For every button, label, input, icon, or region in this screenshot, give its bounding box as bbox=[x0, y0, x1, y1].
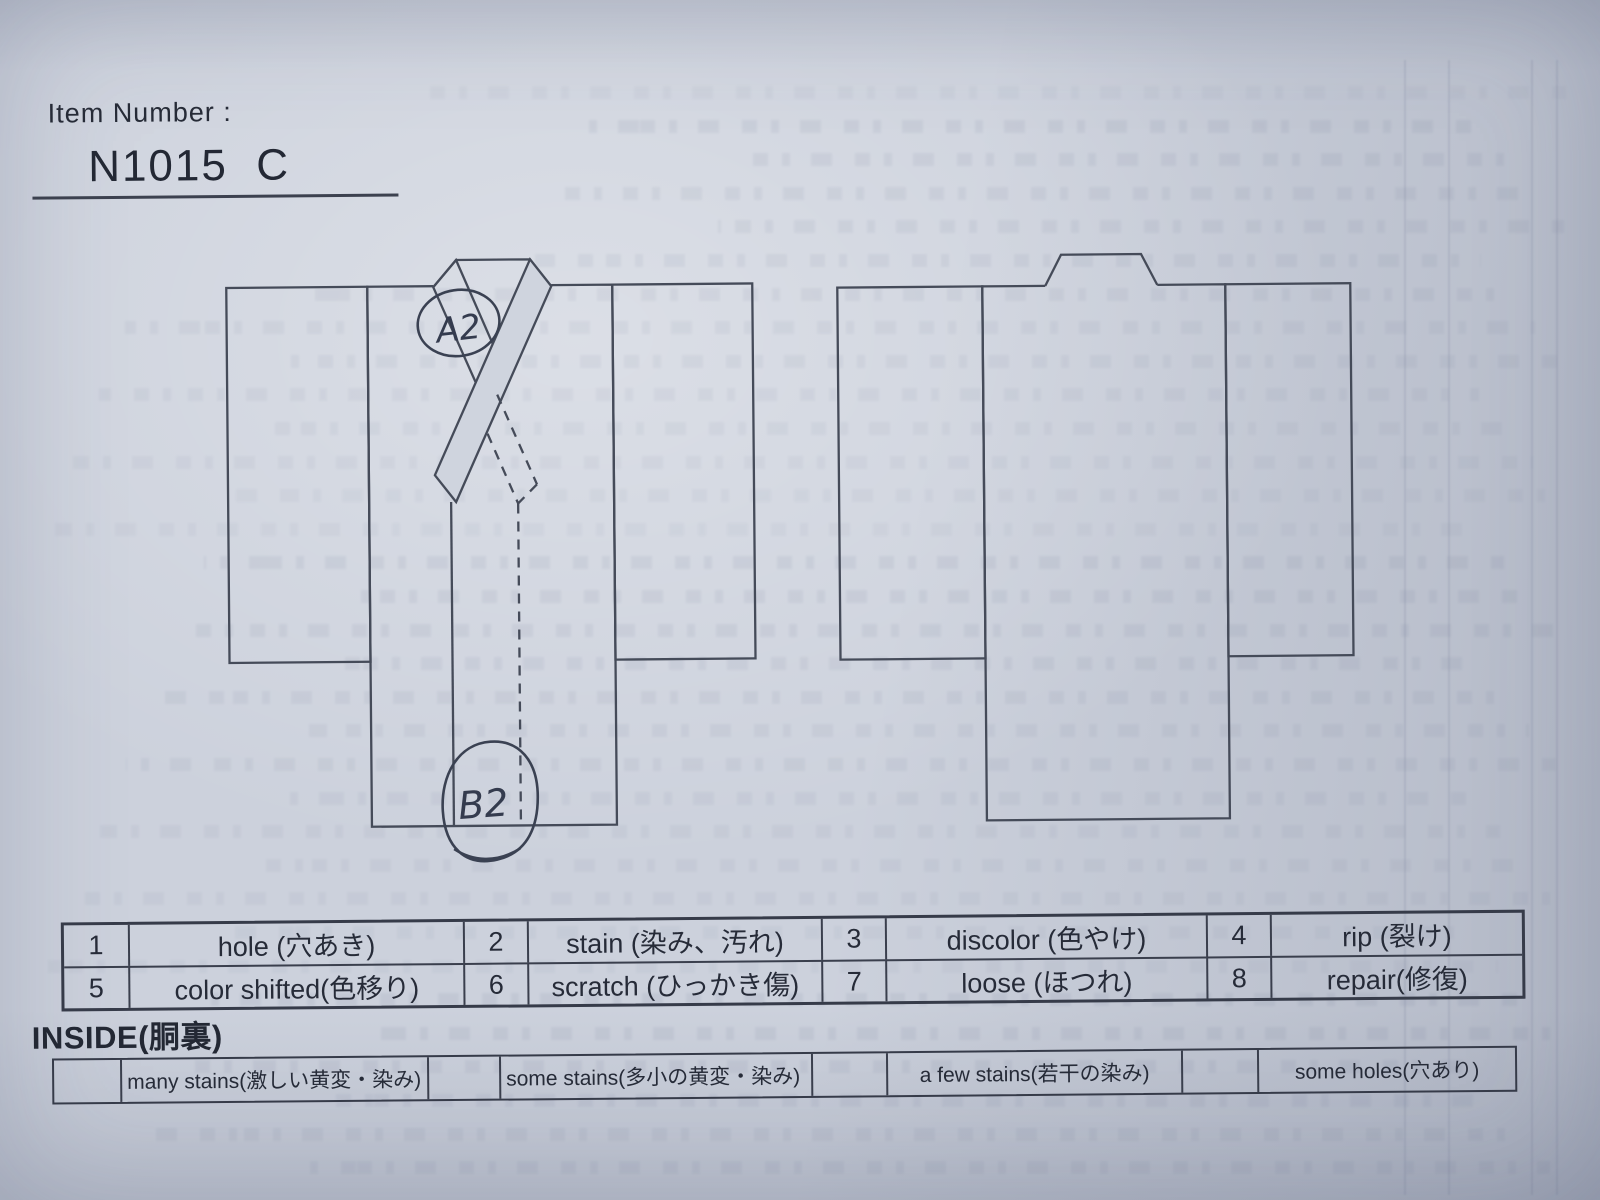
back-right-sleeve bbox=[1225, 283, 1353, 656]
inside-option-label: a few stains(若干の染み) bbox=[886, 1051, 1181, 1096]
defect-label-cell: scratch (ひっかき傷) bbox=[527, 960, 821, 1005]
collar-annotation-label: A2 bbox=[432, 307, 483, 352]
inside-option-label: some holes(穴あり) bbox=[1257, 1048, 1515, 1092]
front-left-sleeve bbox=[226, 287, 370, 663]
inside-checkbox-cell bbox=[811, 1053, 886, 1096]
defect-label-cell: discolor (色やけ) bbox=[885, 915, 1206, 959]
front-right-sleeve bbox=[612, 283, 755, 659]
inside-checkbox-cell bbox=[54, 1060, 120, 1103]
defect-label-cell: rip (裂け) bbox=[1270, 913, 1522, 956]
defect-code-cell: 4 bbox=[1206, 915, 1270, 957]
kimono-diagram: A2 B2 bbox=[0, 0, 1600, 1200]
front-collar-right-band bbox=[433, 259, 553, 502]
inside-checkbox-cell bbox=[1181, 1050, 1257, 1093]
defect-code-cell: 6 bbox=[463, 962, 527, 1005]
hem-annotation-label: B2 bbox=[457, 780, 511, 828]
defect-label-cell: stain (染み、汚れ) bbox=[527, 919, 821, 963]
inside-checkbox-cell bbox=[427, 1057, 499, 1100]
front-overlap-edge bbox=[451, 502, 454, 826]
defect-label-cell: repair(修復) bbox=[1270, 954, 1522, 998]
defect-label-cell: loose (ほつれ) bbox=[885, 956, 1206, 1001]
defect-legend-table: 1 hole (穴あき) 2 stain (染み、汚れ) 3 discolor … bbox=[61, 910, 1526, 1012]
defect-code-cell: 1 bbox=[64, 925, 128, 967]
back-body bbox=[982, 284, 1230, 820]
sheet-content: Item Number : N1015 C bbox=[0, 0, 1600, 1200]
defect-code-cell: 8 bbox=[1206, 956, 1270, 999]
inside-section-title: INSIDE(胴裏) bbox=[32, 1011, 223, 1058]
defect-code-cell: 2 bbox=[463, 921, 527, 963]
defect-label-cell: hole (穴あき) bbox=[128, 922, 463, 966]
back-left-sleeve bbox=[837, 286, 985, 659]
defect-code-cell: 7 bbox=[821, 959, 885, 1002]
kimono-back-outline bbox=[837, 252, 1355, 821]
back-collar bbox=[1045, 254, 1157, 286]
defect-code-cell: 5 bbox=[64, 966, 128, 1009]
inside-option-label: some stains(多小の黄変・染み) bbox=[499, 1054, 811, 1099]
hem-annotation-tail bbox=[454, 848, 520, 859]
defect-code-cell: 3 bbox=[821, 918, 885, 960]
front-inner-edge-dashed bbox=[518, 503, 521, 820]
inside-option-label: many stains(激しい黄変・染み) bbox=[120, 1057, 427, 1102]
defect-label-cell: color shifted(色移り) bbox=[128, 963, 463, 1008]
scanned-inspection-sheet: Item Number : N1015 C bbox=[0, 0, 1600, 1200]
